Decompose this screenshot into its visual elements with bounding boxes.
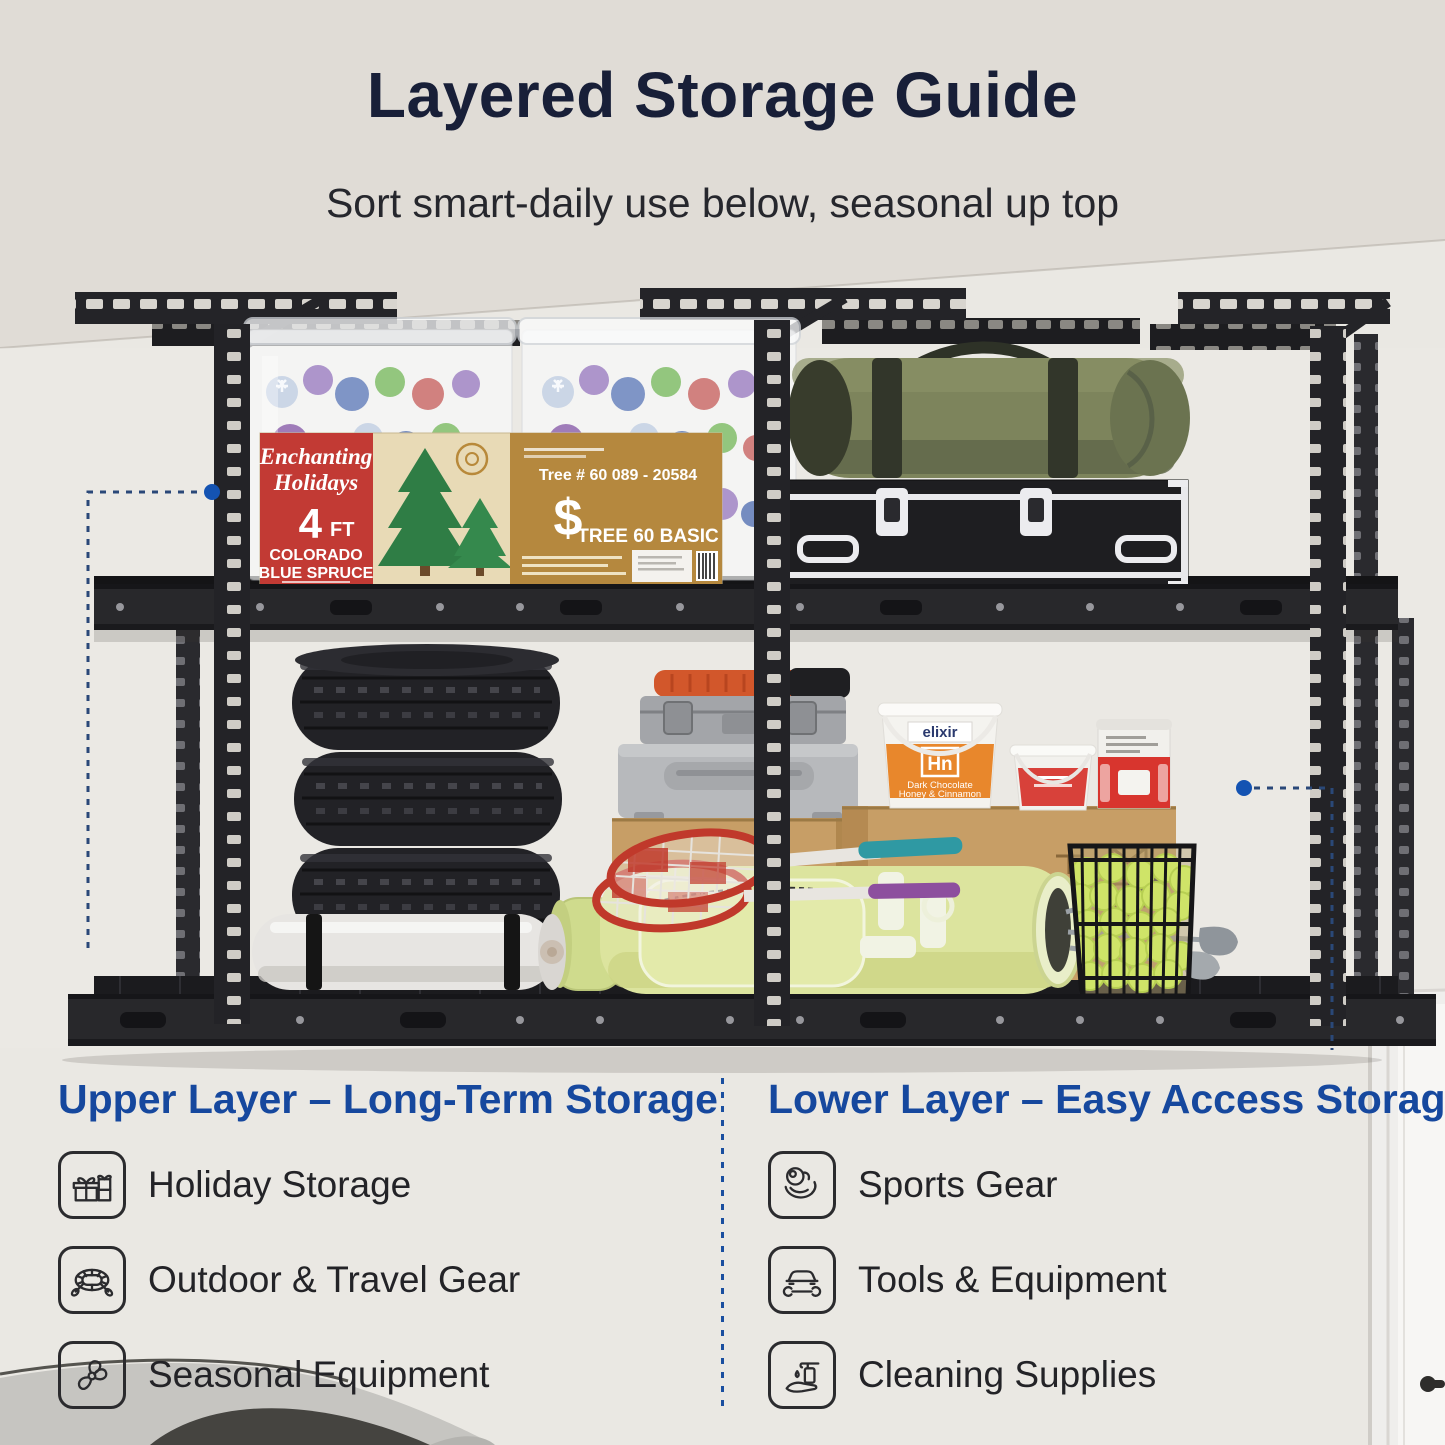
rack-rear-post	[1354, 334, 1378, 1014]
list-item-label: Cleaning Supplies	[858, 1354, 1156, 1396]
tree-box-brand-line1: Enchanting	[259, 444, 373, 469]
small-bucket	[1010, 745, 1096, 810]
duffel-bag	[788, 347, 1190, 478]
list-item: Outdoor & Travel Gear	[58, 1246, 718, 1314]
paint-bucket: elixir Hn Dark Chocolate Honey & Cinnamo…	[878, 703, 1002, 808]
rack-rear-post	[1392, 618, 1414, 1008]
rack-front-post	[214, 324, 250, 1024]
upper-shelf-beam	[94, 584, 1398, 642]
bucket-brand: elixir	[922, 724, 957, 741]
tennis-ball-basket	[1066, 846, 1198, 996]
tree-box-size-number: 4	[299, 500, 323, 547]
christmas-tree-box: Enchanting Holidays 4 FT COLORADO BLUE S…	[259, 433, 722, 585]
bucket-flavor-line2: Honey & Cinnamon	[899, 789, 981, 800]
raft-icon	[58, 1246, 126, 1314]
list-item: Seasonal Equipment	[58, 1341, 718, 1409]
lower-layer-header: Lower Layer – Easy Access Storage	[768, 1076, 1428, 1123]
fan-icon	[58, 1341, 126, 1409]
tree-box-variety-line2: BLUE SPRUCE	[259, 565, 374, 582]
bucket-code: Hn	[927, 754, 952, 775]
gift-icon	[58, 1151, 126, 1219]
paint-can	[1096, 719, 1172, 808]
page-subtitle: Sort smart-daily use below, seasonal up …	[0, 180, 1445, 227]
lower-layer-section: Lower Layer – Easy Access Storage Sports…	[768, 1076, 1428, 1436]
car-wrench-icon	[768, 1246, 836, 1314]
page-title: Layered Storage Guide	[0, 58, 1445, 132]
rack-front-post	[754, 320, 790, 1026]
list-item-label: Seasonal Equipment	[148, 1354, 489, 1396]
tree-box-brand-line2: Holidays	[273, 470, 358, 495]
cleaning-icon	[768, 1341, 836, 1409]
list-item: Tools & Equipment	[768, 1246, 1428, 1314]
list-item-label: Sports Gear	[858, 1164, 1057, 1206]
list-item: Cleaning Supplies	[768, 1341, 1428, 1409]
lower-shelf-beam	[62, 994, 1436, 1073]
tree-box-variety-line1: COLORADO	[269, 547, 362, 564]
list-item: Sports Gear	[768, 1151, 1428, 1219]
list-item-label: Outdoor & Travel Gear	[148, 1259, 520, 1301]
yoga-mat	[252, 914, 566, 990]
column-divider	[721, 1078, 724, 1408]
flight-case	[770, 480, 1188, 588]
sports-icon	[768, 1151, 836, 1219]
list-item-label: Tools & Equipment	[858, 1259, 1167, 1301]
layered-storage-guide: Enchanting Holidays 4 FT COLORADO BLUE S…	[0, 0, 1445, 1445]
tree-box-model: TREE 60 BASIC	[577, 526, 719, 547]
callout-upper-dot	[204, 484, 220, 500]
rack-front-post	[1310, 326, 1346, 1026]
upper-layer-header: Upper Layer – Long-Term Storage	[58, 1076, 718, 1123]
tree-box-number: Tree # 60 089 - 20584	[539, 467, 697, 484]
callout-lower-dot	[1236, 780, 1252, 796]
tree-box-size-unit: FT	[330, 519, 354, 541]
list-item: Holiday Storage	[58, 1151, 718, 1219]
upper-layer-section: Upper Layer – Long-Term Storage Holiday …	[58, 1076, 718, 1436]
tire-stack	[292, 644, 562, 942]
list-item-label: Holiday Storage	[148, 1164, 411, 1206]
rack-rear-post	[176, 618, 200, 1008]
